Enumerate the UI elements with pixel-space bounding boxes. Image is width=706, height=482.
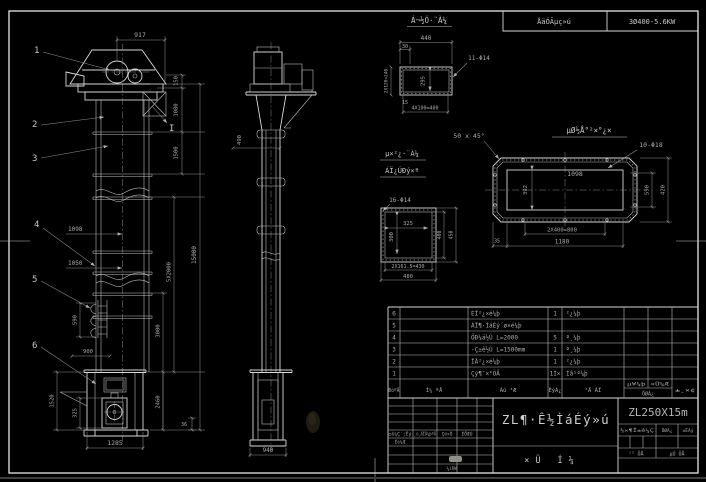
dim-1520: 1520 [50, 394, 56, 407]
dim-sq-325: 325 [403, 221, 413, 227]
dim-fl-590: 590 [645, 185, 651, 195]
rev-header-1: ±ê¼Ç´¦Êý [389, 430, 412, 438]
scale-label: ±ÈÀý [683, 426, 694, 434]
col-name: Ãû ³Æ [500, 387, 517, 394]
row-qty: 1Ì× [550, 371, 561, 378]
dim-fl-1098: 1098 [567, 170, 583, 178]
section-mark: I [169, 124, 174, 134]
dim-150: 150 [174, 76, 180, 86]
row-name: ÉÏ²¿×é¼þ [471, 310, 500, 318]
check-label: ¼ìÑé [447, 465, 458, 472]
dim-sq-480: 480 [403, 274, 413, 280]
row-qty: 1 [553, 311, 557, 318]
row-name: ÁÏ¶·ÌáÉý´ø×é¼þ [471, 322, 522, 330]
row-seq: 6 [392, 311, 396, 318]
weight-label: ÖØÁ¿ [662, 427, 673, 434]
stamp-smudge-core [308, 413, 316, 425]
bucket-chain [91, 300, 107, 338]
design-label: Éè¼Æ [395, 438, 406, 446]
callout-4: 4 [34, 220, 39, 230]
row-material: Íâ¹º¼þ [566, 370, 588, 378]
dim-440: 440 [421, 35, 432, 42]
dim-1500: 1500 [174, 146, 180, 159]
dim-sq-400: 400 [437, 230, 443, 239]
col-code: Í¼ ºÅ [426, 386, 443, 394]
drawing-title: ZL¶·Ê½ÌáÉý»ú [502, 412, 610, 427]
detail-square-title1: µ×²¿·¨À¼ [385, 149, 419, 158]
dim-5x2000: 5X2000 [167, 262, 173, 282]
sheet-no-label: µÚ ÕÅ [669, 451, 684, 458]
dim-sq-450: 450 [449, 230, 455, 239]
dim-917: 917 [134, 31, 146, 39]
detail-channel-holes: 11-Φ14 [468, 55, 490, 62]
row-seq: 5 [392, 323, 396, 330]
dim-30: 30 [402, 44, 408, 50]
col-qty: ÊýÁ¿ [549, 386, 562, 394]
row-name: ÏÂ²¿×é¼þ [471, 359, 500, 366]
dim-1285: 1285 [107, 439, 123, 447]
side-view: 490 940 [233, 42, 320, 457]
row-name: ·Ç±ê½Ú L=1500mm [471, 347, 526, 354]
dim-fl-1180: 1180 [555, 239, 570, 246]
row-qty: 1 [553, 347, 557, 354]
dim-3000: 3000 [156, 324, 162, 337]
front-dimensions: 917 150 1080 1500 15000 5X2000 1098 1050… [50, 31, 206, 450]
row-seq: 4 [392, 335, 396, 342]
col-material: ²Ä ÁÏ [585, 387, 602, 394]
dim-900: 900 [83, 349, 93, 355]
detail-square-holes: 16-Φ14 [389, 197, 411, 204]
row-name: ÖÐ¼ä½Ú L=2000 [471, 335, 518, 342]
dim-2x120: 2X120=240 [384, 69, 390, 94]
row-name: Çý¶¯×°ÖÃ [471, 371, 500, 378]
rev-header-2: ¸ü¸ÄÎÄ¼þºÅ [414, 431, 436, 438]
header-band: ÅäÓÃµç»ú 3Ø400-5.6KW [503, 11, 698, 31]
cad-drawing: ÅäÓÃµç»ú 3Ø400-5.6KW [0, 0, 706, 482]
dim-1050: 1050 [68, 260, 83, 267]
dim-36: 36 [181, 422, 187, 428]
row-material: º¸¼þ [566, 335, 581, 342]
rev-header-4: ÈÕÆÚ [462, 430, 473, 438]
dim-fl-35: 35 [494, 239, 500, 245]
dim-940: 940 [263, 447, 274, 454]
row-qty: 1 [553, 359, 557, 366]
dim-295: 295 [421, 76, 427, 86]
col-weight-top: µ¥¼þ ×Ü¼Æ [627, 381, 669, 388]
row-seq: 3 [392, 347, 396, 354]
motor-spec: 3Ø400-5.6KW [629, 18, 676, 26]
callout-3: 3 [32, 154, 37, 164]
callout-6: 6 [32, 341, 37, 351]
dim-sq-300: 300 [389, 232, 395, 242]
col-weight-bottom: ÖØÁ¿ [642, 391, 654, 398]
sheet-total-label: ¹² ÕÅ [628, 451, 643, 458]
row-qty: 5 [553, 335, 557, 342]
row-material: ²¿¼þ [566, 359, 581, 366]
dim-sq-2x161: 2X161.5=430 [391, 264, 424, 270]
dim-590: 590 [73, 315, 79, 325]
dim-4x100: 4X100=400 [411, 106, 438, 112]
dim-1098: 1098 [68, 226, 83, 233]
dim-1080: 1080 [174, 103, 180, 116]
row-seq: 1 [392, 371, 396, 378]
detail-flange-holes: 10-Φ18 [639, 141, 663, 149]
dim-fl-420: 420 [661, 185, 667, 195]
callout-2: 2 [32, 120, 37, 130]
dim-325: 325 [73, 408, 79, 418]
drawing-subtitle: ×Ü Í¼ [524, 454, 580, 466]
dim-2460: 2460 [156, 395, 162, 408]
callout-1: 1 [34, 46, 39, 56]
detail-square: µ×²¿·¨À¼ ÁÏ¿ÚÐý×ª 16-Φ14 325 300 400 450… [380, 149, 458, 282]
chamfer-label: 50 x 45° [453, 132, 484, 140]
motor-label: ÅäÓÃµç»ú [537, 17, 571, 26]
row-material: ²¿¼þ [566, 311, 581, 318]
col-seq: ÐòºÅ [389, 387, 401, 394]
cad-drawing-canvas: ÅäÓÃµç»ú 3Ø400-5.6KW [0, 0, 706, 482]
dim-fl-2x400: 2X400=800 [547, 228, 577, 234]
title-block: ±ê¼Ç´¦Êý ¸ü¸ÄÎÄ¼þºÅ Ç©×Ö ÈÕÆÚ Éè¼Æ ¼ìÑé … [388, 398, 698, 473]
stage-label: ½×¶Î±ê¼Ç [620, 427, 654, 434]
dim-15000: 15000 [191, 246, 198, 264]
dim-490: 490 [237, 135, 243, 145]
rev-header-3: Ç©×Ö [442, 431, 453, 438]
approval-stamp [449, 456, 462, 462]
callout-5: 5 [32, 275, 37, 285]
row-seq: 2 [392, 359, 396, 366]
dim-fl-392: 392 [523, 185, 529, 195]
boot-section [60, 370, 148, 436]
detail-channel: Á¬½Ó·¨À¼ 295 440 30 2X120=240 11-Φ14 15 … [384, 16, 491, 114]
front-view [60, 44, 166, 442]
detail-flange: µØ½Å°²×°¿× 50 x 45° 10-Φ18 1098 392 590 … [453, 126, 672, 248]
row-material: º¸¼þ [566, 347, 581, 354]
model-number: ZL250X15m [628, 406, 688, 419]
col-note: ±¸×¢ [675, 388, 695, 394]
detail-flange-title: µØ½Å°²×°¿× [566, 126, 611, 135]
detail-channel-title: Á¬½Ó·¨À¼ [411, 16, 448, 25]
detail-square-title2: ÁÏ¿ÚÐý×ª [385, 166, 419, 175]
